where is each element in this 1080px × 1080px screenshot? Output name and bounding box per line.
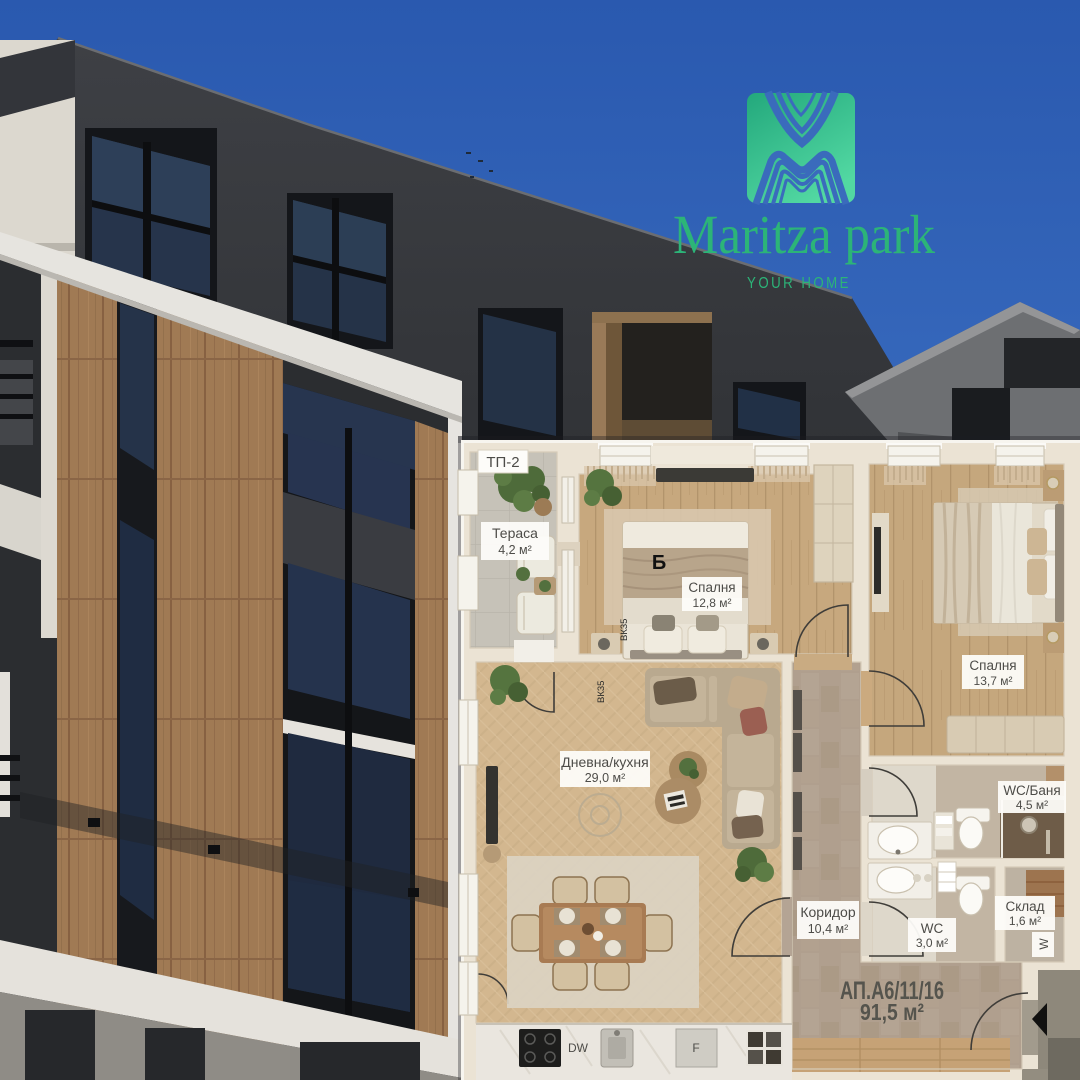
- svg-text:W: W: [1037, 938, 1051, 950]
- svg-text:1,6 м²: 1,6 м²: [1009, 914, 1041, 928]
- svg-text:10,4 м²: 10,4 м²: [808, 922, 849, 936]
- svg-text:F: F: [692, 1041, 699, 1055]
- svg-text:Спалня: Спалня: [969, 658, 1016, 673]
- svg-text:Б: Б: [652, 552, 666, 574]
- svg-text:Maritza park: Maritza park: [673, 204, 935, 265]
- svg-text:13,7 м²: 13,7 м²: [974, 674, 1013, 688]
- svg-text:Коридор: Коридор: [800, 904, 856, 920]
- svg-text:3,0 м²: 3,0 м²: [916, 936, 948, 950]
- svg-text:WC: WC: [921, 921, 944, 936]
- svg-text:Дневна/кухня: Дневна/кухня: [561, 754, 648, 770]
- svg-text:YOUR HOME: YOUR HOME: [747, 275, 851, 292]
- svg-text:12,8 м²: 12,8 м²: [693, 596, 732, 610]
- svg-text:DW: DW: [568, 1041, 589, 1055]
- svg-text:ВК35: ВК35: [596, 681, 607, 703]
- svg-text:WC/Баня: WC/Баня: [1003, 783, 1060, 798]
- svg-text:4,5 м²: 4,5 м²: [1016, 798, 1048, 812]
- svg-text:29,0 м²: 29,0 м²: [585, 771, 626, 785]
- svg-text:ВК35: ВК35: [619, 619, 630, 641]
- svg-text:Склад: Склад: [1005, 899, 1044, 914]
- svg-text:Спалня: Спалня: [688, 580, 735, 595]
- svg-text:ТП-2: ТП-2: [486, 454, 519, 471]
- svg-text:91,5 м²: 91,5 м²: [860, 999, 924, 1025]
- svg-text:4,2 м²: 4,2 м²: [498, 543, 532, 557]
- svg-text:Тераса: Тераса: [492, 525, 538, 541]
